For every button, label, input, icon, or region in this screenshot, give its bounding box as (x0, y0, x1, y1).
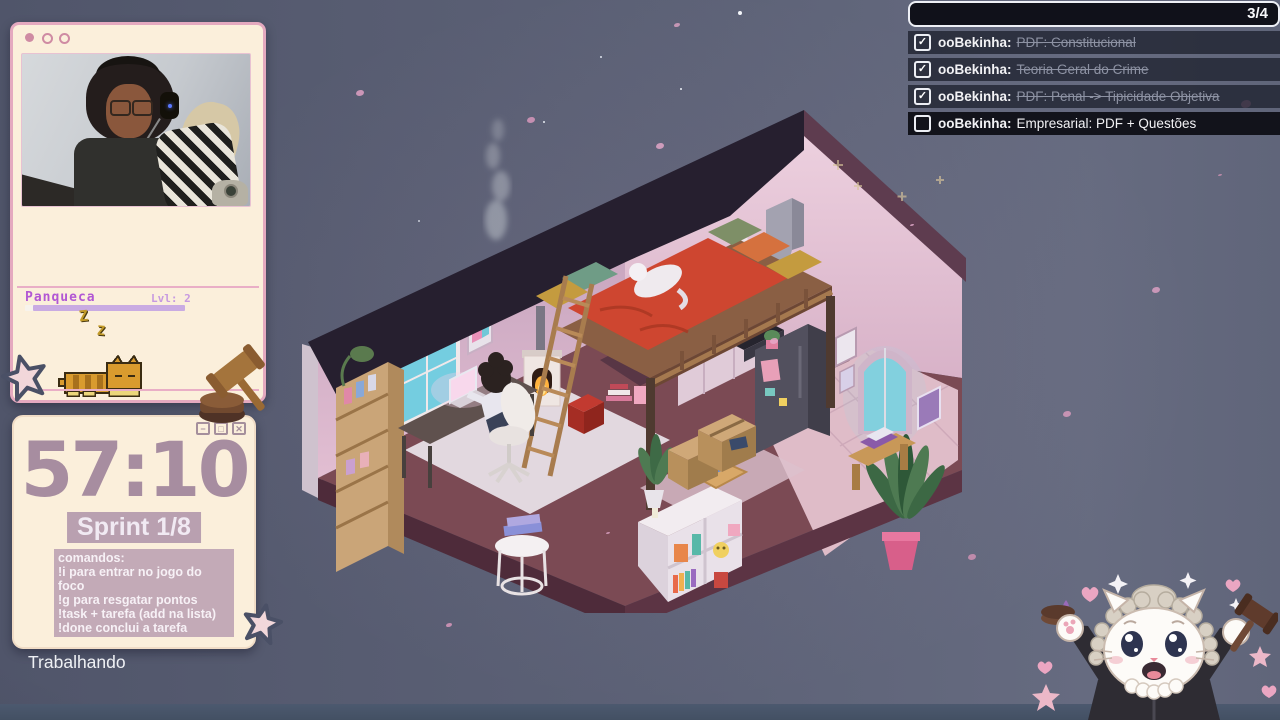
checkbox-checked-icon[interactable]: ✓ (914, 61, 931, 78)
pet-level: Lvl: 2 (151, 292, 191, 305)
heart-icon (1082, 587, 1099, 602)
window-dot-icon (59, 33, 70, 44)
star-icon (1249, 646, 1271, 667)
star-icon (240, 602, 284, 648)
commands-title: comandos: (58, 551, 230, 565)
status-text: Trabalhando (28, 652, 126, 673)
star-icon (1032, 684, 1060, 711)
sprint-label: Sprint 1/8 (67, 512, 201, 543)
task-user: ooBekinha: (938, 35, 1012, 50)
device-knob (224, 184, 238, 198)
task-user: ooBekinha: (938, 89, 1012, 104)
command-line: !done conclui a tarefa (58, 621, 230, 635)
command-line: !i para entrar no jogo do foco (58, 565, 230, 593)
window-dot-icon (25, 33, 34, 42)
task-text: Empresarial: PDF + Questões (1017, 116, 1197, 131)
task-row: ooBekinha: Empresarial: PDF + Questões (908, 112, 1280, 135)
chimney-smoke (485, 119, 510, 240)
command-line: !g para resgatar pontos (58, 593, 230, 607)
timer-window: − □ ✕ 57:10 Sprint 1/8 comandos: !i para… (12, 415, 256, 649)
task-list-overlay: 3/4 ✓ ooBekinha: PDF: Constitucional ✓ o… (908, 1, 1280, 135)
cozy-room-scene (300, 98, 970, 613)
sleep-z-icon: Z (78, 307, 89, 326)
headset-led (168, 104, 172, 108)
task-counter: 3/4 (908, 1, 1280, 27)
pet-progress-track (25, 305, 185, 311)
petal-particles (356, 90, 364, 96)
sparkle-icon (1180, 572, 1197, 589)
glasses-left-lens (110, 100, 131, 116)
pet-name: Panqueca (25, 290, 96, 305)
heart-icon (1038, 662, 1053, 675)
glasses-right-lens (132, 100, 153, 116)
window-dot-icon (42, 33, 53, 44)
task-user: ooBekinha: (938, 62, 1012, 77)
gavel-icon (186, 344, 280, 428)
task-row: ✓ ooBekinha: PDF: Penal -> Tipicidade Ob… (908, 85, 1280, 108)
heart-icon (1262, 686, 1277, 699)
checkbox-checked-icon[interactable]: ✓ (914, 88, 931, 105)
sparkle-icon (1108, 574, 1128, 594)
star-icon (0, 352, 50, 404)
command-line: !task + tarefa (add na lista) (58, 607, 230, 621)
judge-cat-mascot (1030, 572, 1278, 720)
task-row: ✓ ooBekinha: Teoria Geral do Crime (908, 58, 1280, 81)
pixel-cat (57, 355, 157, 401)
webcam-video (21, 53, 251, 207)
book-stacks (606, 384, 646, 404)
pet-progress-fill (33, 305, 185, 311)
task-row: ✓ ooBekinha: PDF: Constitucional (908, 31, 1280, 54)
task-text: Teoria Geral do Crime (1017, 62, 1149, 77)
commands-panel: comandos: !i para entrar no jogo do foco… (54, 549, 234, 637)
task-text: PDF: Constitucional (1017, 35, 1136, 50)
checkbox-checked-icon[interactable]: ✓ (914, 34, 931, 51)
task-text: PDF: Penal -> Tipicidade Objetiva (1017, 89, 1220, 104)
heart-icon (1226, 580, 1241, 593)
timer-countdown: 57:10 (14, 425, 254, 514)
checkbox-unchecked-icon[interactable] (914, 115, 931, 132)
webcam-titlebar (13, 25, 263, 51)
pet-divider (17, 286, 259, 288)
sleep-z-icon: Z (96, 324, 105, 340)
task-user: ooBekinha: (938, 116, 1012, 131)
